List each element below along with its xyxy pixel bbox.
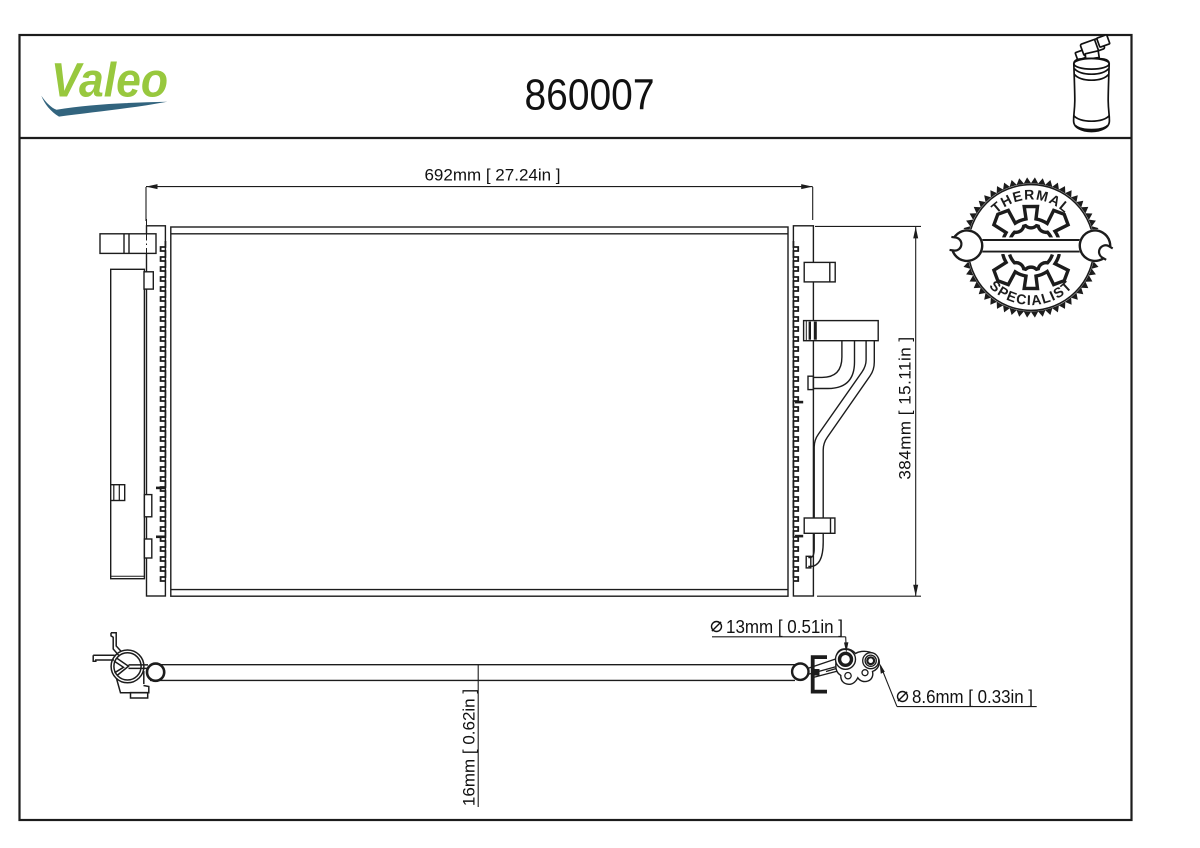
svg-text:13mm [ 0.51in ]: 13mm [ 0.51in ] (726, 617, 843, 637)
svg-text:860007: 860007 (525, 72, 655, 120)
svg-text:Valeo: Valeo (51, 54, 168, 108)
svg-text:16mm [ 0.62in ]: 16mm [ 0.62in ] (460, 689, 479, 806)
svg-text:384mm [ 15.11in ]: 384mm [ 15.11in ] (896, 336, 915, 479)
svg-text:692mm [ 27.24in ]: 692mm [ 27.24in ] (424, 166, 560, 185)
svg-text:8.6mm [ 0.33in ]: 8.6mm [ 0.33in ] (912, 687, 1033, 707)
